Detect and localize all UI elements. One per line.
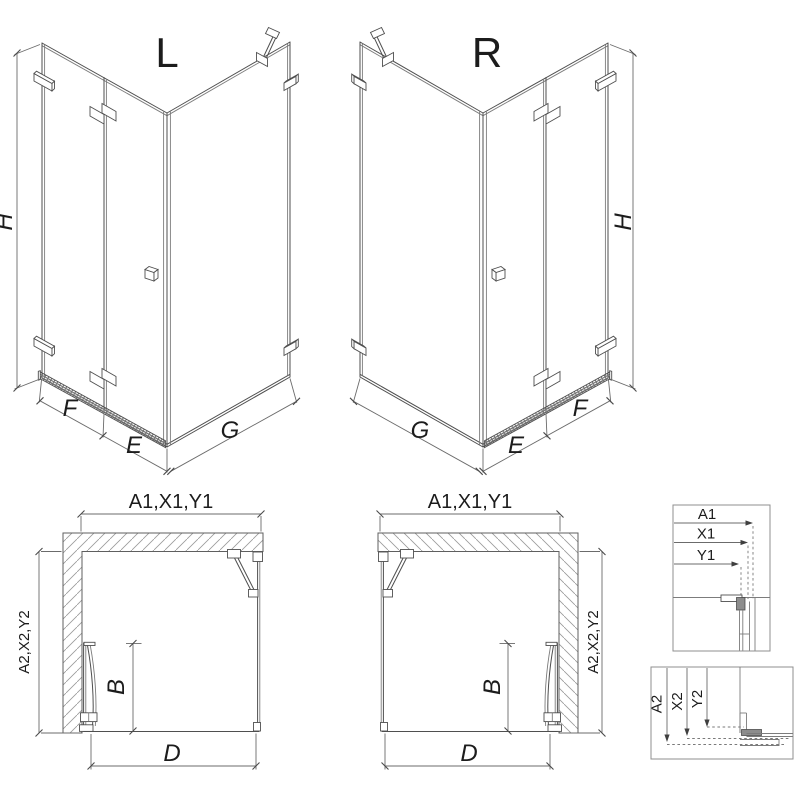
plan-right-dim-door: B — [479, 679, 506, 695]
plan-right-dim-depth: A2,X2,Y2 — [585, 610, 602, 673]
technical-drawing-sheet: L H F E G R H F E G A1,X1,Y1 A2,X2,Y2 B … — [0, 0, 800, 800]
detail-top-profile-section — [721, 595, 755, 651]
detail-top-label-a1: A1 — [698, 506, 716, 523]
drawing-canvas: L H F E G R H F E G A1,X1,Y1 A2,X2,Y2 B … — [0, 0, 800, 800]
detail-bottom-profile-section — [740, 713, 793, 746]
detail-bottom-label-y2: Y2 — [689, 690, 706, 708]
plan-view-left: A1,X1,Y1 A2,X2,Y2 B D — [16, 491, 265, 770]
detail-bottom-label-x2: X2 — [669, 692, 686, 710]
plan-left-dim-depth: A2,X2,Y2 — [16, 610, 33, 673]
dim-label-side-left: G — [221, 417, 240, 444]
iso-view-left: L H F E G — [0, 28, 300, 475]
variant-label-right: R — [472, 29, 502, 76]
detail-top-label-y1: Y1 — [697, 547, 715, 564]
detail-top-label-x1: X1 — [697, 526, 715, 543]
plan-right-dim-entry: D — [460, 740, 477, 767]
plan-right-dim-width: A1,X1,Y1 — [428, 491, 513, 513]
detail-box-top: A1 X1 Y1 — [673, 505, 770, 651]
dim-label-fixed-right: F — [573, 395, 589, 422]
dim-label-height-left: H — [0, 213, 18, 231]
plan-view-right: A1,X1,Y1 A2,X2,Y2 B D — [377, 491, 606, 770]
dim-label-fixed-left: F — [63, 395, 79, 422]
dim-label-door-right: E — [508, 432, 525, 459]
iso-view-right: R H F E G — [350, 28, 637, 475]
dim-label-height-right: H — [610, 213, 637, 231]
plan-left-dim-width: A1,X1,Y1 — [129, 491, 214, 513]
dim-label-side-right: G — [411, 417, 430, 444]
plan-left-dim-entry: D — [163, 740, 180, 767]
plan-left-dim-door: B — [103, 679, 130, 695]
detail-bottom-label-a2: A2 — [649, 695, 666, 713]
detail-box-bottom: A2 X2 Y2 — [649, 667, 794, 759]
dim-label-door-left: E — [126, 432, 143, 459]
variant-label-left: L — [155, 29, 178, 76]
